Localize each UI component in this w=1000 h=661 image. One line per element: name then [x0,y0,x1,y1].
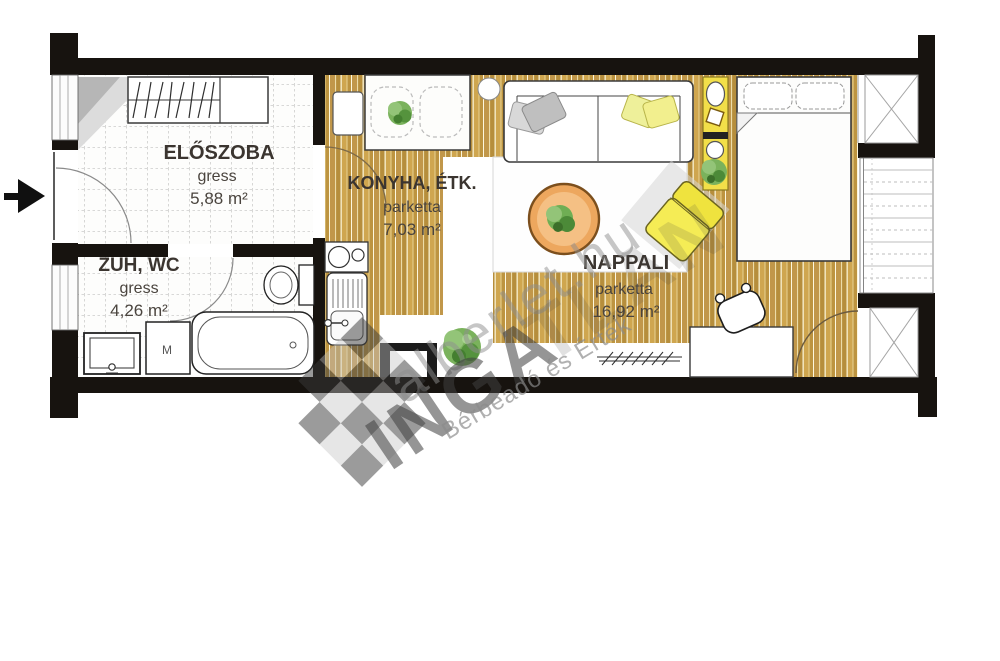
dining-table [365,75,470,150]
desk [690,327,793,377]
room-floor-eloszoba: gress [197,168,236,185]
wall-hall-bath-right [233,244,325,257]
wall-bottom-right-foot [918,393,937,417]
bed-pillow-2 [796,83,844,109]
balcony-deck [860,158,933,293]
room-area-konyha: 7,03 m² [383,220,441,239]
left-windows [52,75,78,330]
bed-pillow-1 [744,83,792,109]
wall-balcony-bottom [858,293,935,308]
room-label-konyha: KONYHA, ÉTK. [347,172,476,193]
room-area-zuhwc: 4,26 m² [110,301,168,320]
room-label-eloszoba: ELŐSZOBA [163,141,274,164]
bed [737,77,851,261]
window-hall [52,75,78,140]
shelf-column [701,77,728,190]
side-chair [333,92,363,135]
room-floor-konyha: parketta [383,199,441,216]
pendant-circle [478,78,500,100]
toilet-tank [299,265,314,305]
washbasin-tap [109,364,115,370]
bathtub-drain [290,342,296,348]
sink-tap [325,320,332,327]
wall-balcony-top [858,143,935,158]
room-area-eloszoba: 5,88 m² [190,189,248,208]
window-bath [52,265,78,330]
entrance-arrow-icon [4,179,45,213]
room-floor-zuhwc: gress [119,280,158,297]
burner-large [329,247,350,268]
wall-left-upper-stub [52,140,78,150]
wall-hall-kitchen [313,60,325,145]
wall-right-lower [918,308,935,377]
floorplan-image: M [0,0,1000,661]
burner-small [352,249,364,261]
room-label-zuhwc: ZUH, WC [98,255,180,276]
table-plant [388,101,412,125]
shelf-plant [701,159,727,185]
washing-machine-label: M [162,343,172,357]
wall-top [53,58,935,75]
wall-top-left-pillar [50,33,78,75]
floorplan-svg: M [0,0,1000,661]
hall-furniture [128,77,268,123]
wall-bottom-left-foot [50,393,78,418]
sofa [504,81,693,162]
wall-right-upper [918,35,935,158]
